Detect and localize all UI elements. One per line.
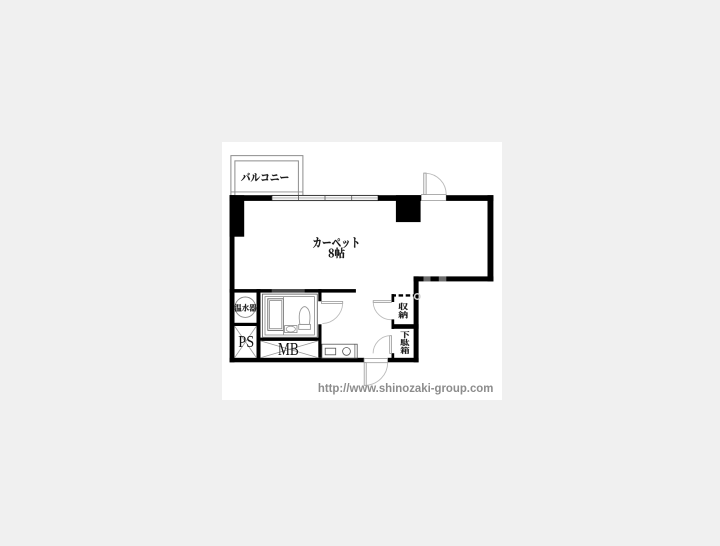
svg-text:PS: PS [238, 332, 254, 351]
svg-text:http://www.shinozaki-group.com: http://www.shinozaki-group.com [318, 381, 494, 395]
svg-text:MB: MB [278, 339, 299, 359]
